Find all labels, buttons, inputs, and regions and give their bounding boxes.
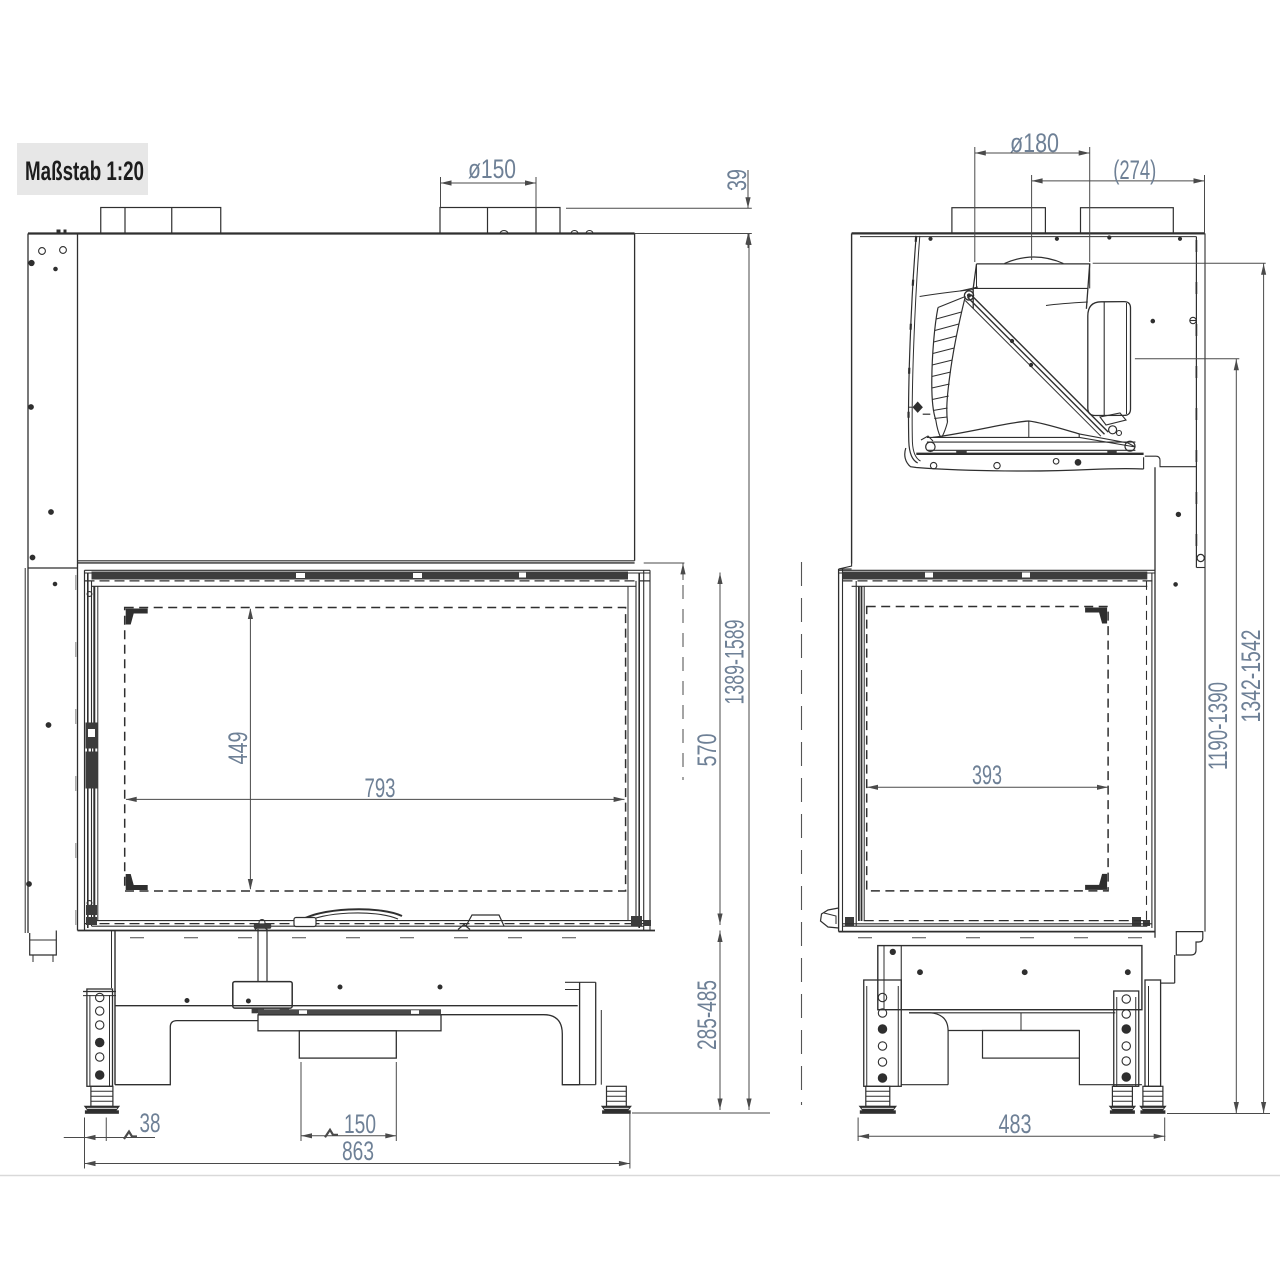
svg-text:38: 38 (140, 1108, 161, 1138)
svg-text:570: 570 (692, 734, 722, 767)
svg-text:1342-1542: 1342-1542 (1236, 630, 1266, 723)
svg-text:863: 863 (342, 1136, 374, 1166)
svg-text:1190-1390: 1190-1390 (1203, 682, 1233, 770)
svg-text:449: 449 (223, 732, 253, 765)
svg-text:Maßstab 1:20: Maßstab 1:20 (25, 156, 144, 186)
svg-text:ø180: ø180 (1010, 128, 1059, 158)
svg-text:(274): (274) (1113, 155, 1156, 185)
svg-text:39: 39 (722, 169, 752, 191)
svg-text:ø150: ø150 (468, 154, 516, 184)
svg-text:483: 483 (999, 1109, 1032, 1139)
svg-text:285-485: 285-485 (692, 980, 722, 1050)
svg-text:150: 150 (344, 1109, 376, 1139)
svg-text:793: 793 (365, 773, 396, 803)
svg-text:393: 393 (972, 760, 1002, 790)
svg-text:1389-1589: 1389-1589 (720, 620, 750, 705)
